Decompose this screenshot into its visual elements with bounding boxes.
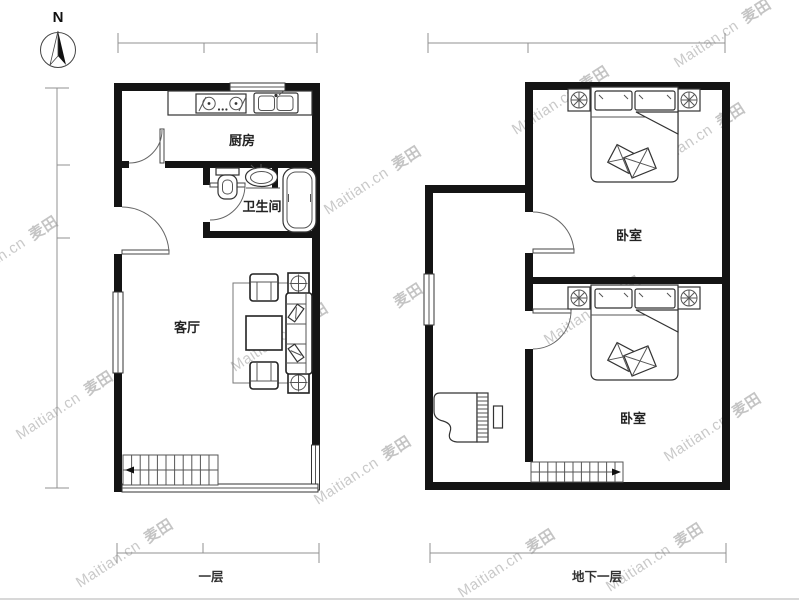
watermark: Maitian.cn麦田 [0,212,61,288]
compass: N [41,9,76,68]
compass-needle-dark [58,31,66,65]
basement-window [424,274,434,325]
room-label-kitchen: 厨房 [229,133,255,148]
stove [196,94,246,113]
toilet [216,168,239,199]
bed-lower-bedroom [568,285,700,380]
bathtub [283,168,316,232]
piano [434,393,503,442]
watermark: Maitian.cn麦田 [310,432,414,508]
bedroom-upper-door [533,212,574,253]
coffee-table [246,316,282,350]
kitchen-door [129,129,164,163]
bed-upper-bedroom [568,87,700,182]
dim-top-floor1 [118,33,317,53]
piano-bench [494,406,503,428]
watermark: Maitian.cn麦田 [320,142,424,218]
watermark: Maitian.cn麦田 [660,389,764,465]
kitchen-window [230,83,285,91]
room-label-living: 客厅 [174,320,200,335]
armchair-top [250,274,278,301]
watermark: Maitian.cn麦田 [670,0,774,71]
bathroom-fixtures [216,164,316,232]
floor1-title: 一层 [198,570,224,584]
floor1-staircase [123,455,218,485]
right-wall-window [312,445,320,490]
side-table-top [288,273,309,294]
room-label-bathroom: 卫生间 [242,199,281,214]
dim-bottom-floor1 [117,543,319,563]
basement-staircase [531,462,623,482]
room-label-bedroom-lower: 卧室 [620,411,646,426]
floorplan-canvas: Maitian.cn麦田 Maitian.cn麦田 Maitian.cn麦田 M… [0,0,799,600]
entrance-door [122,207,169,254]
armchair-bottom [250,362,278,389]
watermark: 麦田 [390,279,426,311]
watermark: Maitian.cn麦田 [454,525,558,600]
watermark: Maitian.cn麦田 [12,367,116,443]
living-room-furniture [233,273,312,393]
room-label-bedroom-upper: 卧室 [616,228,642,243]
sofa [286,293,312,374]
floor1-plan: 厨房 卫生间 客厅 [112,83,320,492]
kitchen-fixtures [168,90,312,115]
compass-north-label: N [53,9,64,26]
compass-needle-light [50,31,58,65]
dim-left-vertical [45,88,70,488]
side-table-bottom [288,372,309,393]
living-left-window [113,292,123,373]
kitchen-sink [254,90,298,113]
floorplan-svg: Maitian.cn麦田 Maitian.cn麦田 Maitian.cn麦田 M… [0,0,799,600]
basement-title: 地下一层 [572,569,623,584]
